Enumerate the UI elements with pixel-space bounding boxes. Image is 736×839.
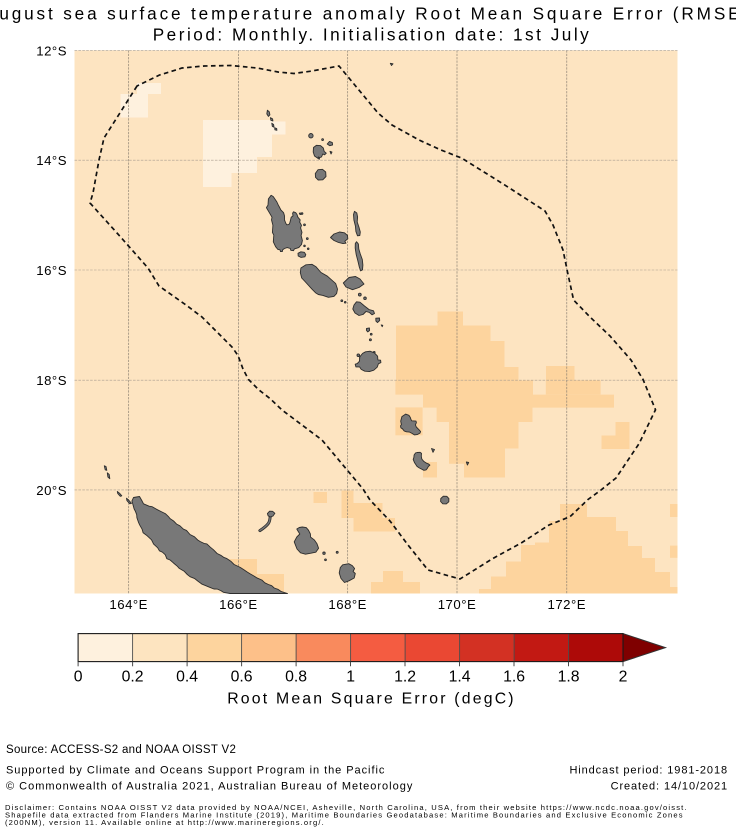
svg-text:1.6: 1.6 xyxy=(503,669,525,686)
svg-text:1.8: 1.8 xyxy=(558,669,580,686)
svg-text:16°S: 16°S xyxy=(36,263,67,278)
svg-text:Period: Monthly. Initialisatio: Period: Monthly. Initialisation date: 1s… xyxy=(153,25,592,45)
svg-text:0.8: 0.8 xyxy=(285,669,307,686)
svg-text:© Commonwealth of Australia 20: © Commonwealth of Australia 2021, Austra… xyxy=(6,781,413,793)
svg-text:166°E: 166°E xyxy=(219,597,258,612)
svg-text:0: 0 xyxy=(74,669,83,686)
svg-text:Source: ACCESS-S2 and NOAA OIS: Source: ACCESS-S2 and NOAA OISST V2 xyxy=(6,744,236,756)
svg-text:1: 1 xyxy=(346,669,355,686)
svg-text:20°S: 20°S xyxy=(36,483,67,498)
svg-text:1.2: 1.2 xyxy=(394,669,416,686)
svg-text:Created: 14/10/2021: Created: 14/10/2021 xyxy=(611,781,728,793)
svg-text:0.4: 0.4 xyxy=(176,669,198,686)
svg-text:12°S: 12°S xyxy=(36,44,67,59)
svg-text:168°E: 168°E xyxy=(328,597,367,612)
svg-text:0.2: 0.2 xyxy=(122,669,144,686)
svg-text:Hindcast period: 1981-2018: Hindcast period: 1981-2018 xyxy=(569,765,728,777)
svg-text:1.4: 1.4 xyxy=(449,669,471,686)
svg-text:14°S: 14°S xyxy=(36,153,67,168)
svg-text:170°E: 170°E xyxy=(438,597,477,612)
svg-text:August sea surface temperature: August sea surface temperature anomaly R… xyxy=(0,4,736,24)
svg-text:0.6: 0.6 xyxy=(231,669,253,686)
svg-text:18°S: 18°S xyxy=(36,373,67,388)
svg-text:164°E: 164°E xyxy=(109,597,148,612)
svg-text:(200NM), version 11. Available: (200NM), version 11. Available online at… xyxy=(5,818,325,827)
svg-text:Supported by Climate and Ocean: Supported by Climate and Oceans Support … xyxy=(6,765,385,777)
svg-text:172°E: 172°E xyxy=(548,597,587,612)
svg-text:2: 2 xyxy=(619,669,628,686)
svg-text:Root Mean Square Error (degC): Root Mean Square Error (degC) xyxy=(227,691,516,708)
